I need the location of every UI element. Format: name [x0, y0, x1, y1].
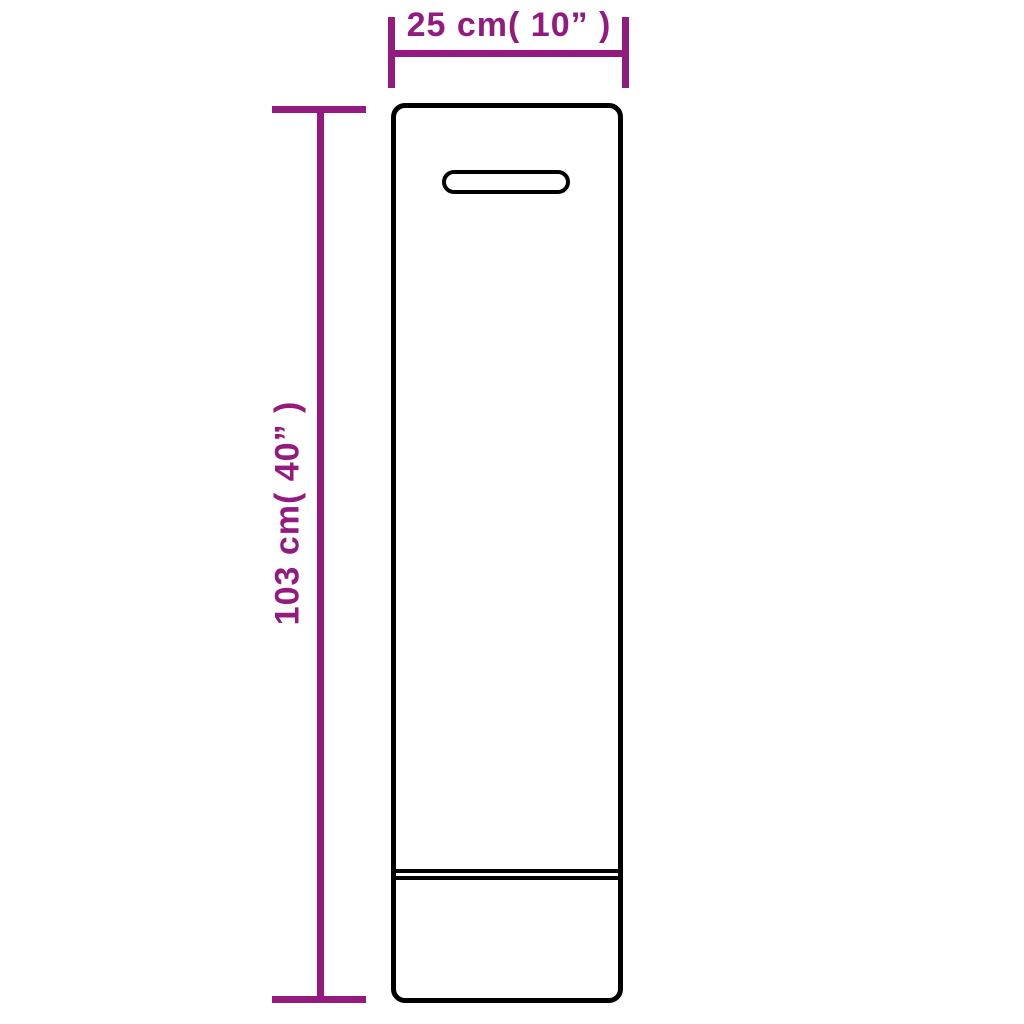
bottom-seam-upper-line — [391, 869, 623, 873]
height-dimension-top-tick — [272, 106, 366, 113]
width-dimension-label: 25 cm( 10” ) — [391, 6, 627, 45]
height-dimension-label: 103 cm( 40” ) — [269, 401, 308, 626]
handle-slot-shape — [442, 170, 570, 194]
width-dimension-left-tick — [388, 17, 395, 88]
height-dimension-line — [317, 110, 324, 1000]
height-dimension-bottom-tick — [272, 996, 366, 1003]
bottom-seam-lower-line — [391, 876, 623, 880]
width-dimension-line — [391, 50, 627, 57]
bag-outline-shape — [391, 103, 623, 1003]
width-dimension-right-tick — [622, 17, 629, 88]
product-dimension-diagram: 25 cm( 10” ) 103 cm( 40” ) — [0, 0, 1024, 1024]
